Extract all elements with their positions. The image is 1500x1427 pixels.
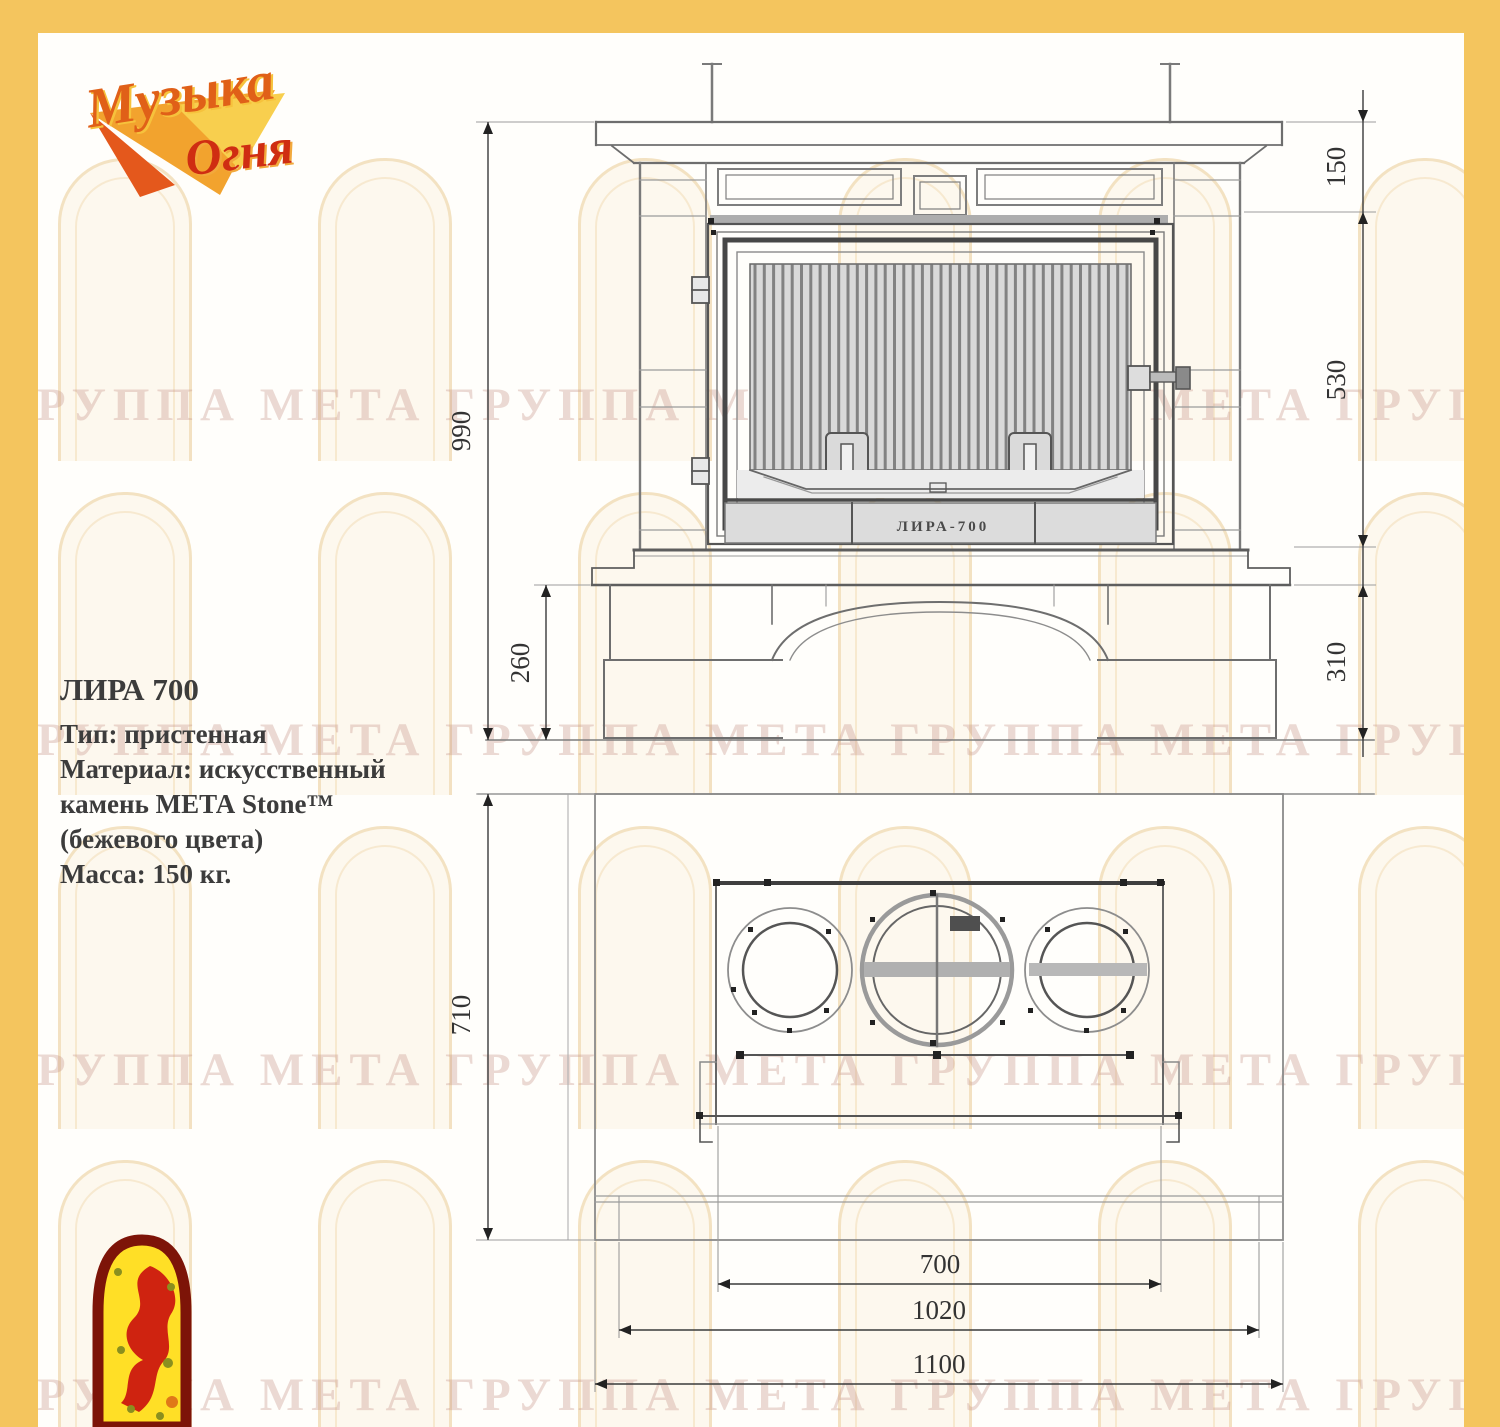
dim-710: 710 xyxy=(446,995,476,1036)
dim-260: 260 xyxy=(505,643,535,684)
damper-mark xyxy=(950,916,980,931)
insert-front-rail xyxy=(696,1112,1182,1142)
dim-1100: 1100 xyxy=(913,1349,966,1379)
border-left xyxy=(0,0,38,1427)
product-material-1: Материал: искусственный xyxy=(60,752,386,787)
arch-inner xyxy=(790,612,1090,660)
firebox-door: ЛИРА-700 xyxy=(692,218,1190,544)
plan-view xyxy=(478,794,1374,1240)
base-pedestal xyxy=(604,585,1276,738)
product-type: Тип: пристенная xyxy=(60,717,386,752)
mantel-shelf xyxy=(596,122,1282,163)
border-top xyxy=(0,0,1500,33)
platform-front-band xyxy=(595,1196,1283,1202)
product-mass: Масса: 150 кг. xyxy=(60,857,386,892)
page: ГРУППА МЕТА ГРУППА МЕТА ГРУППА МЕТА ГРУП… xyxy=(0,0,1500,1427)
outlet-circle-left xyxy=(728,908,852,1033)
dim-990: 990 xyxy=(446,411,476,452)
product-material-3: (бежевого цвета) xyxy=(60,822,386,857)
brand-logo: Музыка Огня xyxy=(55,35,345,205)
dim-150: 150 xyxy=(1321,147,1351,188)
front-view: ЛИРА-700 xyxy=(486,64,1374,740)
dim-310: 310 xyxy=(1321,642,1351,683)
door-plinth: ЛИРА-700 xyxy=(725,503,1156,543)
door-handle xyxy=(1128,366,1190,390)
bench-slab xyxy=(592,550,1290,585)
outlet-circle-right xyxy=(1025,908,1149,1033)
insert-sides xyxy=(716,883,1163,1124)
frieze-panels xyxy=(718,169,1162,215)
arch-logo xyxy=(98,1240,186,1427)
chimney-pipes xyxy=(703,64,1179,122)
border-right xyxy=(1464,0,1500,1427)
product-info: ЛИРА 700 Тип: пристенная Материал: искус… xyxy=(60,672,386,892)
product-name: ЛИРА 700 xyxy=(60,672,386,708)
dim-700: 700 xyxy=(920,1249,961,1279)
grill-bars xyxy=(755,266,1127,468)
door-reveal-band xyxy=(710,215,1168,224)
door-stamp: ЛИРА-700 xyxy=(897,519,989,535)
product-material-2: камень МЕТА Stone™ xyxy=(60,787,386,822)
side-steps xyxy=(700,1062,1179,1124)
ash-lip xyxy=(737,470,1144,498)
base-platform-outline xyxy=(595,794,1283,1240)
flue-circle-center xyxy=(862,890,1012,1046)
dim-1020: 1020 xyxy=(912,1295,966,1325)
dim-530: 530 xyxy=(1321,360,1351,401)
